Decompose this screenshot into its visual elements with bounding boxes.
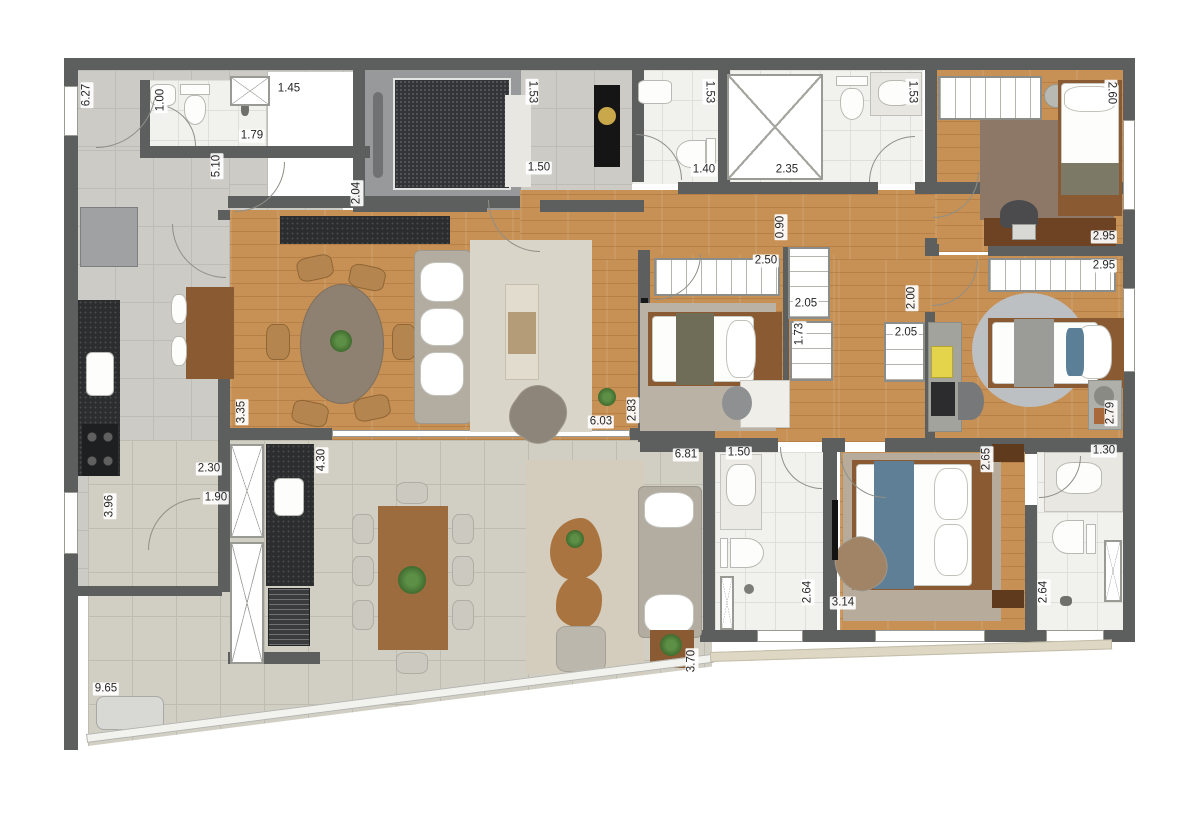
terrace-sofa-pillow-1 [644, 492, 694, 528]
dimension-label: 3.14 [830, 597, 856, 610]
dining-chair-w [266, 324, 290, 360]
breakfast-table [186, 287, 234, 379]
foyer-runner [594, 85, 620, 167]
dimension-label: 1.53 [703, 79, 716, 105]
bedroom4-blanket [1014, 319, 1054, 387]
kitchen-sink [86, 352, 114, 396]
gourmet-sink [274, 478, 304, 516]
dimension-label: 1.90 [203, 492, 229, 505]
bathR-toilet-bowl [1052, 520, 1084, 554]
lavabo-bottom-wall [140, 146, 370, 158]
master-nightstand-1 [992, 444, 1024, 462]
bedroom2-desk-chair [722, 386, 752, 420]
cooktop [82, 424, 118, 476]
dimension-label: 2.65 [981, 446, 994, 472]
bedroom4-yellow-cabinet [931, 346, 953, 378]
terrace-ottoman [556, 626, 606, 672]
fridge [80, 207, 138, 267]
elevator-cab [393, 78, 511, 190]
terrace-chair-r1 [452, 514, 474, 544]
suite-bathR-left-wall-a [1025, 440, 1037, 454]
terrace-chair-l3 [352, 600, 374, 630]
bathL-basin [726, 464, 756, 506]
bedroom3-laptop [1012, 224, 1036, 240]
master-pillow-2 [934, 524, 968, 576]
lavabo-toilet-tank [180, 84, 210, 95]
dimension-label: 3.96 [104, 493, 117, 519]
tv-console-lower [508, 312, 536, 354]
dimension-label: 1.53 [906, 79, 919, 105]
dimension-label: 5.10 [211, 153, 224, 179]
bathL-toilet-tank [720, 538, 728, 568]
dimension-label: 4.30 [316, 447, 329, 473]
dimension-label: 1.50 [526, 162, 552, 175]
window-left-top [64, 86, 78, 136]
window-suite-bathL [757, 630, 803, 642]
terrace-chair-top [396, 482, 428, 504]
terrace-chair-r3 [452, 600, 474, 630]
bathL-toilet-bowl [730, 538, 764, 568]
master-pillow-1 [934, 468, 968, 520]
dimension-label: 0.90 [775, 214, 788, 240]
dimension-label: 2.60 [1105, 80, 1118, 106]
foyer-gold-bowl [598, 107, 616, 125]
terrace-sofa-pillow-2 [644, 594, 694, 634]
terrace-storage-xbox-1 [230, 444, 264, 538]
terrace-side-plant [660, 634, 682, 656]
dimension-label: 2.50 [753, 255, 779, 268]
dimension-label: 2.83 [627, 397, 640, 423]
dimension-label: 3.70 [686, 648, 699, 674]
living-plant [598, 388, 616, 406]
bedroom4-pillow-blue [1066, 328, 1084, 376]
breakfast-chair-1 [171, 294, 187, 324]
master-nightstand-2 [992, 590, 1024, 608]
dimension-label: 2.30 [196, 463, 222, 476]
dimension-label: 1.79 [239, 130, 265, 143]
terrace-chair-r2 [452, 556, 474, 586]
dimension-label: 6.03 [588, 416, 614, 429]
living-top-wall [228, 196, 520, 208]
dimension-label: 2.04 [351, 180, 364, 206]
elevator-handrail [373, 92, 383, 178]
master-headboard [978, 460, 992, 590]
terrace-coffee-plant [566, 530, 584, 548]
bathL-shower-glass [720, 576, 734, 630]
bedroom3-blanket [1061, 163, 1119, 195]
dimension-label: 1.40 [691, 164, 717, 177]
bath2-toilet-bowl [840, 88, 864, 120]
dimension-label: 1.45 [276, 83, 302, 96]
suite-bathR-left-wall-b [1025, 505, 1037, 632]
dimension-label: 2.64 [802, 579, 815, 605]
dimension-label: 2.64 [1038, 579, 1051, 605]
bedroom3-4-wall-a [925, 244, 939, 256]
terrace-chair-bottom [396, 652, 428, 674]
living-sofa-pillow-3 [420, 352, 464, 396]
dimension-label: 1.53 [526, 79, 539, 105]
bedroom2-blanket [676, 313, 714, 385]
dimension-label: 2.79 [1105, 400, 1118, 426]
living-sofa-pillow-1 [420, 262, 464, 302]
dimension-label: 1.73 [794, 321, 807, 347]
window-left-service [64, 492, 78, 554]
outer-wall-top [65, 58, 1135, 70]
dimension-label: 2.05 [793, 298, 819, 311]
bathL-shower-head [744, 584, 754, 594]
terrace-coffee-table-2 [556, 576, 602, 628]
bedroom3-wardrobe [938, 76, 1042, 120]
bathR-shower-glass [1104, 540, 1122, 602]
dimension-label: 9.65 [93, 683, 119, 696]
wc-sink [638, 80, 672, 104]
bedroom4-desk-chair [958, 382, 984, 420]
dimension-label: 6.81 [673, 449, 699, 462]
dimension-label: 1.00 [155, 87, 168, 113]
terrace-chair-l1 [352, 514, 374, 544]
window-bedroom3-right [1123, 120, 1135, 210]
living-left-wall-a [218, 210, 230, 220]
outer-wall-left [64, 58, 78, 750]
dimension-label: 1.50 [726, 447, 752, 460]
bath2-toilet-tank [836, 76, 868, 86]
dining-chair-e [392, 324, 416, 360]
terrace-table-plant [398, 566, 426, 594]
dimension-label: 3.35 [236, 399, 249, 425]
bedroom2-pillow [726, 320, 756, 378]
service-bottom-wall [77, 586, 222, 596]
bathR-toilet-tank [1086, 524, 1096, 554]
dimension-label: 6.27 [81, 82, 94, 108]
window-bedroom4-right [1123, 288, 1135, 372]
master-tv [832, 500, 838, 560]
floor-plan-canvas: 6.271.001.451.795.102.041.531.501.401.53… [0, 0, 1200, 829]
bathR-faucet [1060, 596, 1072, 606]
bathrow-bottom-wall-a [678, 182, 878, 194]
dimension-label: 2.35 [774, 164, 800, 177]
dimension-label: 2.00 [906, 285, 919, 311]
window-master [875, 630, 985, 642]
entry-closet-xbox [230, 76, 270, 106]
living-sideboard [280, 216, 450, 244]
foyer-bottom-wall-b [540, 200, 644, 212]
living-terrace-wall-a [228, 428, 332, 440]
slab-edge-strip [710, 639, 1112, 662]
terrace-storage-xbox-2 [230, 542, 264, 664]
terrace-chair-l2 [352, 556, 374, 586]
dimension-label: 2.95 [1091, 260, 1117, 273]
dining-centerpiece-plant [330, 330, 352, 352]
dimension-label: 2.05 [893, 327, 919, 340]
suite-bathL-left-wall [703, 440, 715, 632]
gourmet-grill [268, 588, 310, 646]
dimension-label: 2.95 [1091, 231, 1117, 244]
breakfast-chair-2 [171, 336, 187, 366]
dimension-label: 1.30 [1091, 445, 1117, 458]
living-sofa-pillow-2 [420, 308, 464, 346]
bedroom4-monitor [931, 382, 955, 416]
bedroom3-left-wall-a [925, 58, 937, 188]
